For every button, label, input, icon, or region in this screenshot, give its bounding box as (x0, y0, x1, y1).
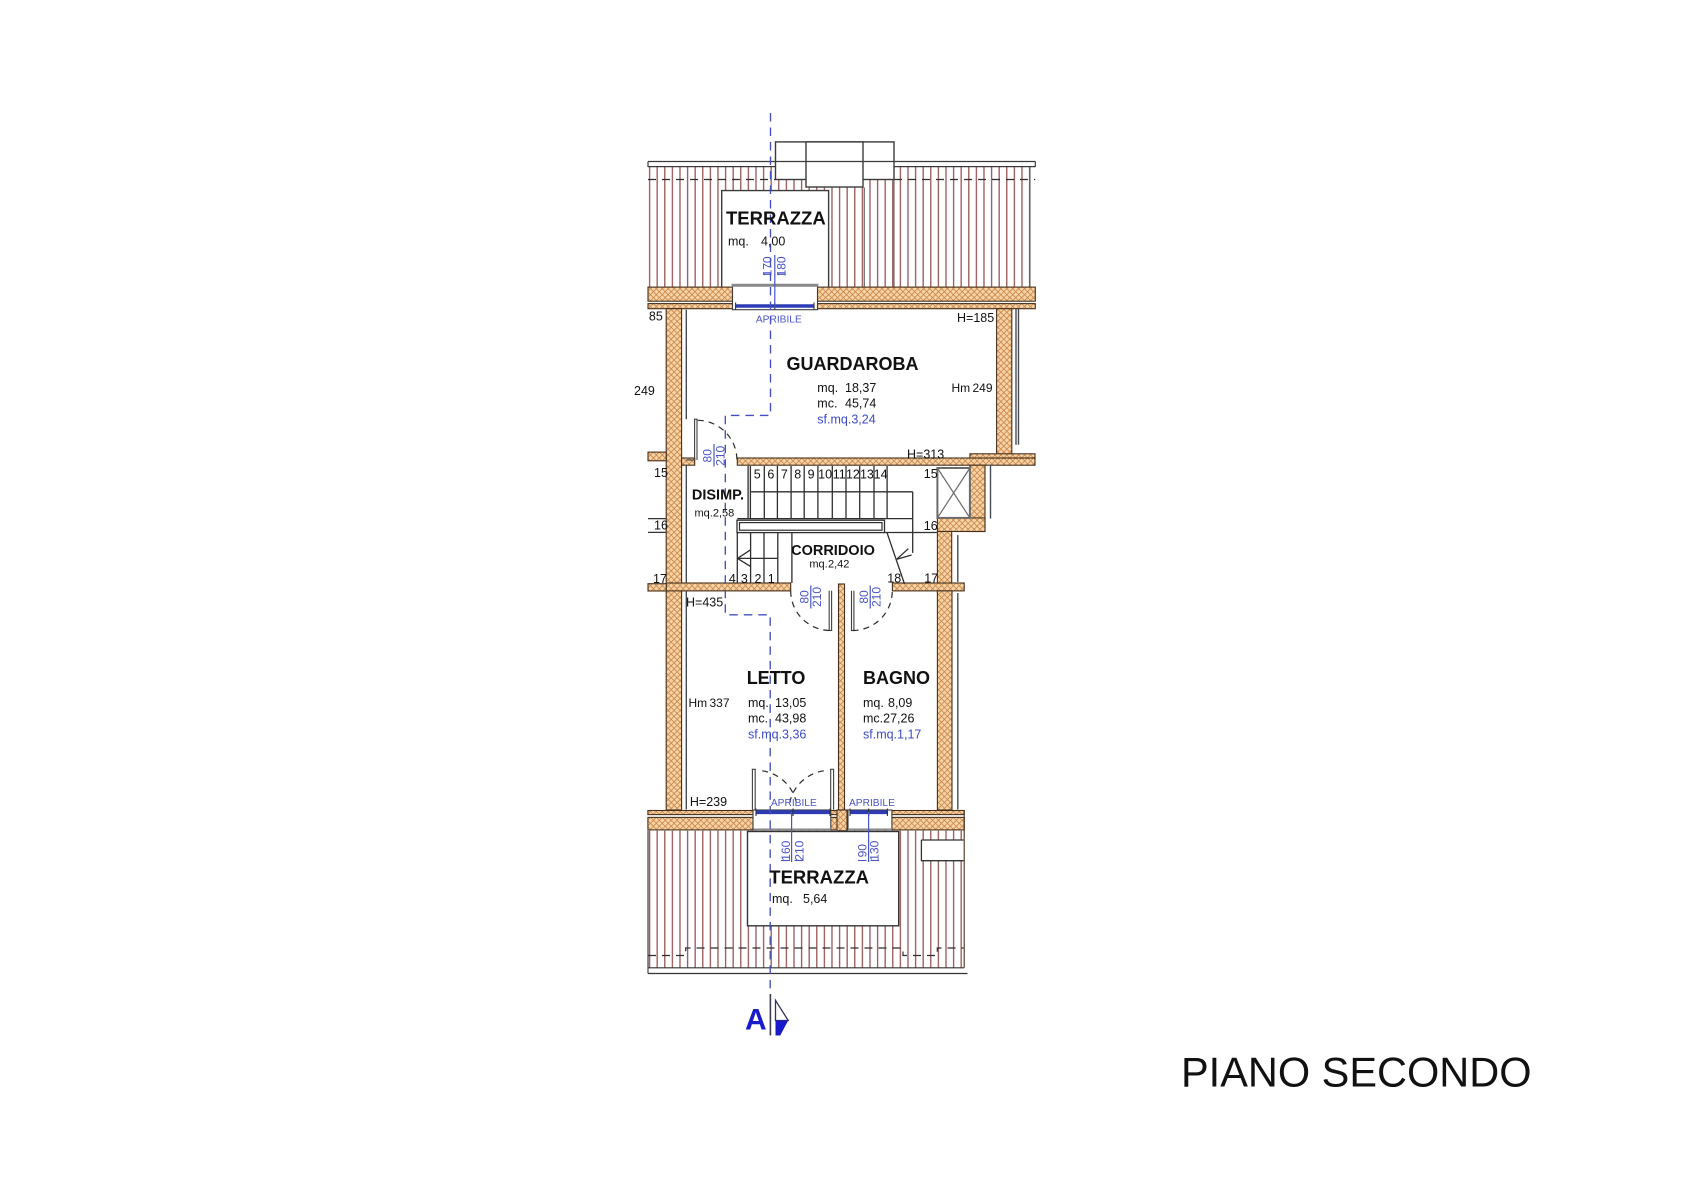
svg-text:12: 12 (846, 468, 860, 482)
svg-text:17: 17 (653, 572, 667, 586)
svg-text:3: 3 (741, 572, 748, 586)
svg-text:85: 85 (649, 310, 663, 324)
svg-text:8: 8 (794, 468, 801, 482)
svg-text:sf.mq.1,17: sf.mq.1,17 (863, 728, 921, 742)
svg-text:6: 6 (767, 468, 774, 482)
svg-text:mq.2,58: mq.2,58 (695, 508, 735, 520)
svg-text:170: 170 (760, 256, 774, 276)
svg-text:mq.: mq. (817, 381, 838, 395)
svg-text:A: A (745, 1004, 767, 1037)
svg-text:10: 10 (818, 468, 832, 482)
svg-text:APRIBILE: APRIBILE (771, 798, 817, 809)
svg-text:mc.27,26: mc.27,26 (863, 712, 914, 726)
svg-text:45,74: 45,74 (845, 397, 876, 411)
svg-text:sf.mq.3,36: sf.mq.3,36 (748, 728, 806, 742)
svg-text:2,42: 2,42 (828, 559, 849, 571)
svg-text:180: 180 (774, 256, 788, 276)
svg-text:APRIBILE: APRIBILE (756, 315, 802, 326)
svg-text:7: 7 (781, 468, 788, 482)
svg-text:Hm: Hm (689, 696, 708, 710)
svg-text:5: 5 (754, 468, 761, 482)
svg-text:8,09: 8,09 (888, 696, 912, 710)
svg-text:337: 337 (710, 696, 730, 710)
svg-text:mq.: mq. (863, 696, 884, 710)
svg-text:H=185: H=185 (957, 311, 994, 325)
svg-text:14: 14 (874, 468, 888, 482)
svg-text:17: 17 (924, 572, 938, 586)
svg-text:H=435: H=435 (686, 596, 723, 610)
svg-text:210: 210 (793, 840, 807, 860)
svg-text:43,98: 43,98 (775, 712, 806, 726)
svg-text:TERRAZZA: TERRAZZA (769, 867, 869, 888)
svg-text:16: 16 (654, 519, 668, 533)
svg-text:PIANO SECONDO: PIANO SECONDO (1181, 1049, 1532, 1096)
svg-text:CORRIDOIO: CORRIDOIO (791, 543, 875, 559)
svg-text:Hm: Hm (952, 381, 971, 395)
svg-text:4,00: 4,00 (761, 235, 785, 249)
svg-text:mq.: mq. (748, 696, 769, 710)
svg-text:18: 18 (887, 572, 901, 586)
svg-text:mq.: mq. (772, 892, 793, 906)
svg-text:APRIBILE: APRIBILE (849, 798, 895, 809)
svg-text:160: 160 (779, 840, 793, 860)
svg-text:15: 15 (654, 466, 668, 480)
svg-text:210: 210 (714, 445, 728, 465)
svg-text:16: 16 (924, 519, 938, 533)
svg-text:TERRAZZA: TERRAZZA (726, 208, 826, 229)
svg-text:LETTO: LETTO (747, 668, 806, 688)
svg-text:13,05: 13,05 (775, 696, 806, 710)
svg-text:15: 15 (924, 467, 938, 481)
svg-text:13: 13 (860, 468, 874, 482)
svg-text:mc.: mc. (817, 397, 837, 411)
svg-text:mc.: mc. (748, 712, 768, 726)
svg-text:GUARDAROBA: GUARDAROBA (787, 354, 919, 374)
svg-text:sf.mq.3,24: sf.mq.3,24 (817, 413, 875, 427)
svg-text:mq.: mq. (809, 559, 827, 571)
svg-text:2: 2 (755, 572, 762, 586)
svg-text:130: 130 (868, 840, 882, 860)
svg-text:210: 210 (810, 587, 824, 607)
svg-text:9: 9 (808, 468, 815, 482)
svg-text:mq.: mq. (728, 235, 749, 249)
svg-text:249: 249 (973, 381, 993, 395)
svg-text:H=313: H=313 (907, 448, 944, 462)
svg-text:BAGNO: BAGNO (863, 668, 930, 688)
svg-text:5,64: 5,64 (803, 892, 827, 906)
svg-text:H=239: H=239 (690, 795, 727, 809)
svg-text:210: 210 (870, 587, 884, 607)
svg-text:DISIMP.: DISIMP. (692, 488, 744, 504)
svg-text:4: 4 (729, 572, 736, 586)
svg-text:1: 1 (768, 572, 775, 586)
svg-text:249: 249 (634, 384, 655, 398)
svg-text:18,37: 18,37 (845, 381, 876, 395)
svg-text:11: 11 (833, 468, 846, 482)
